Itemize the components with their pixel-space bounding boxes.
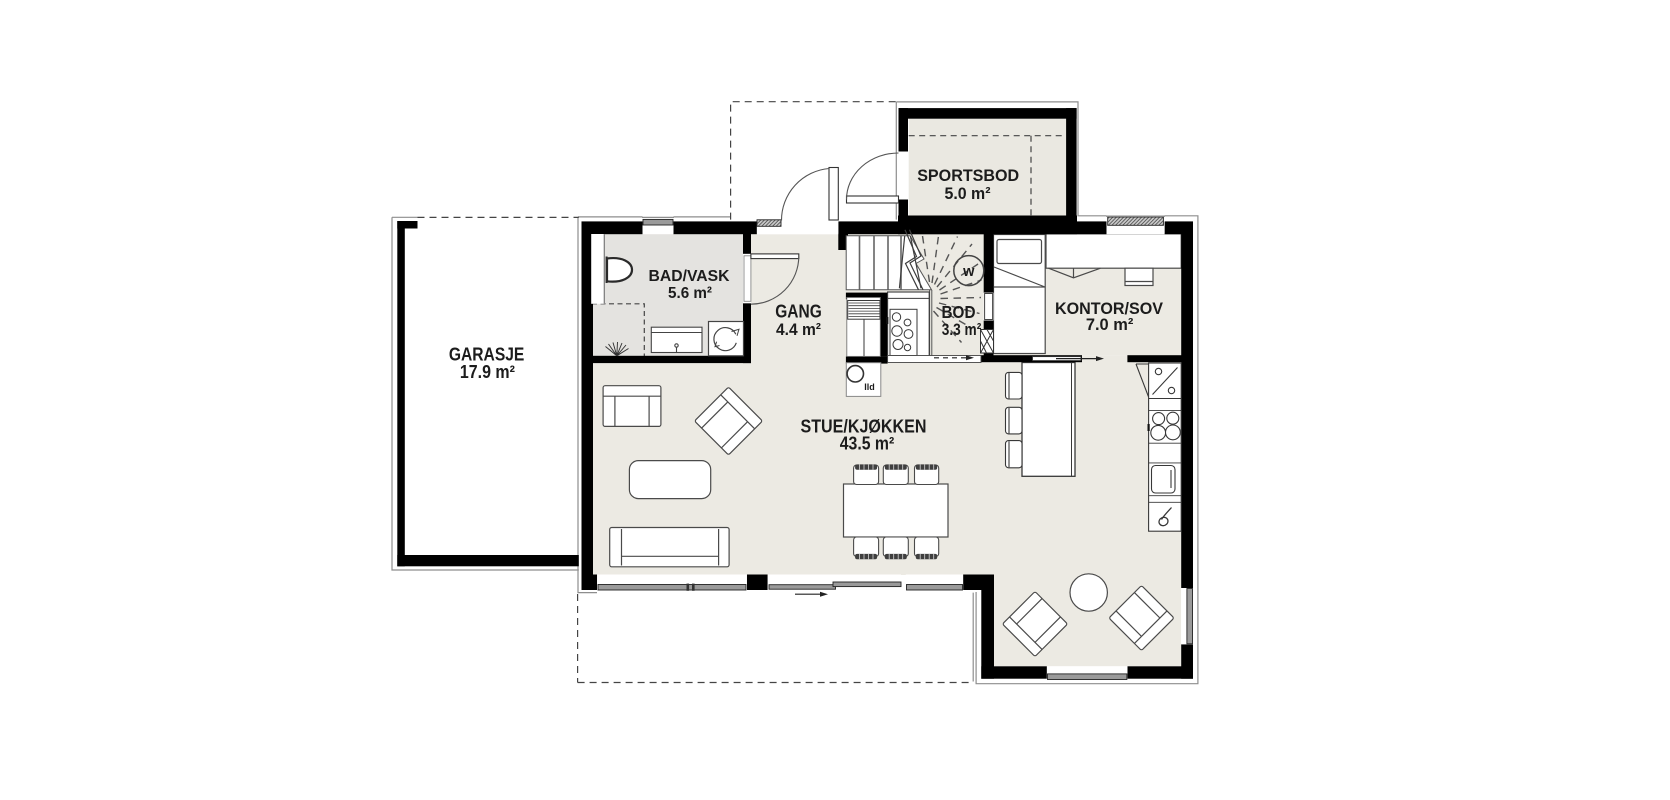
svg-text:7.0 m²: 7.0 m² — [1086, 316, 1134, 334]
svg-text:Ild: Ild — [864, 382, 875, 392]
svg-text:w: w — [962, 264, 975, 280]
svg-text:BAD/VASK: BAD/VASK — [649, 268, 730, 285]
svg-text:5.0 m²: 5.0 m² — [945, 185, 991, 203]
svg-text:BOD: BOD — [942, 302, 976, 322]
svg-text:3.3 m²: 3.3 m² — [942, 320, 982, 339]
svg-text:SPORTSBOD: SPORTSBOD — [917, 167, 1019, 185]
svg-text:5.6 m²: 5.6 m² — [668, 285, 712, 302]
svg-text:17.9 m²: 17.9 m² — [460, 362, 515, 382]
svg-text:4.4 m²: 4.4 m² — [776, 320, 821, 339]
svg-text:GANG: GANG — [775, 302, 822, 322]
svg-text:43.5 m²: 43.5 m² — [840, 434, 895, 454]
